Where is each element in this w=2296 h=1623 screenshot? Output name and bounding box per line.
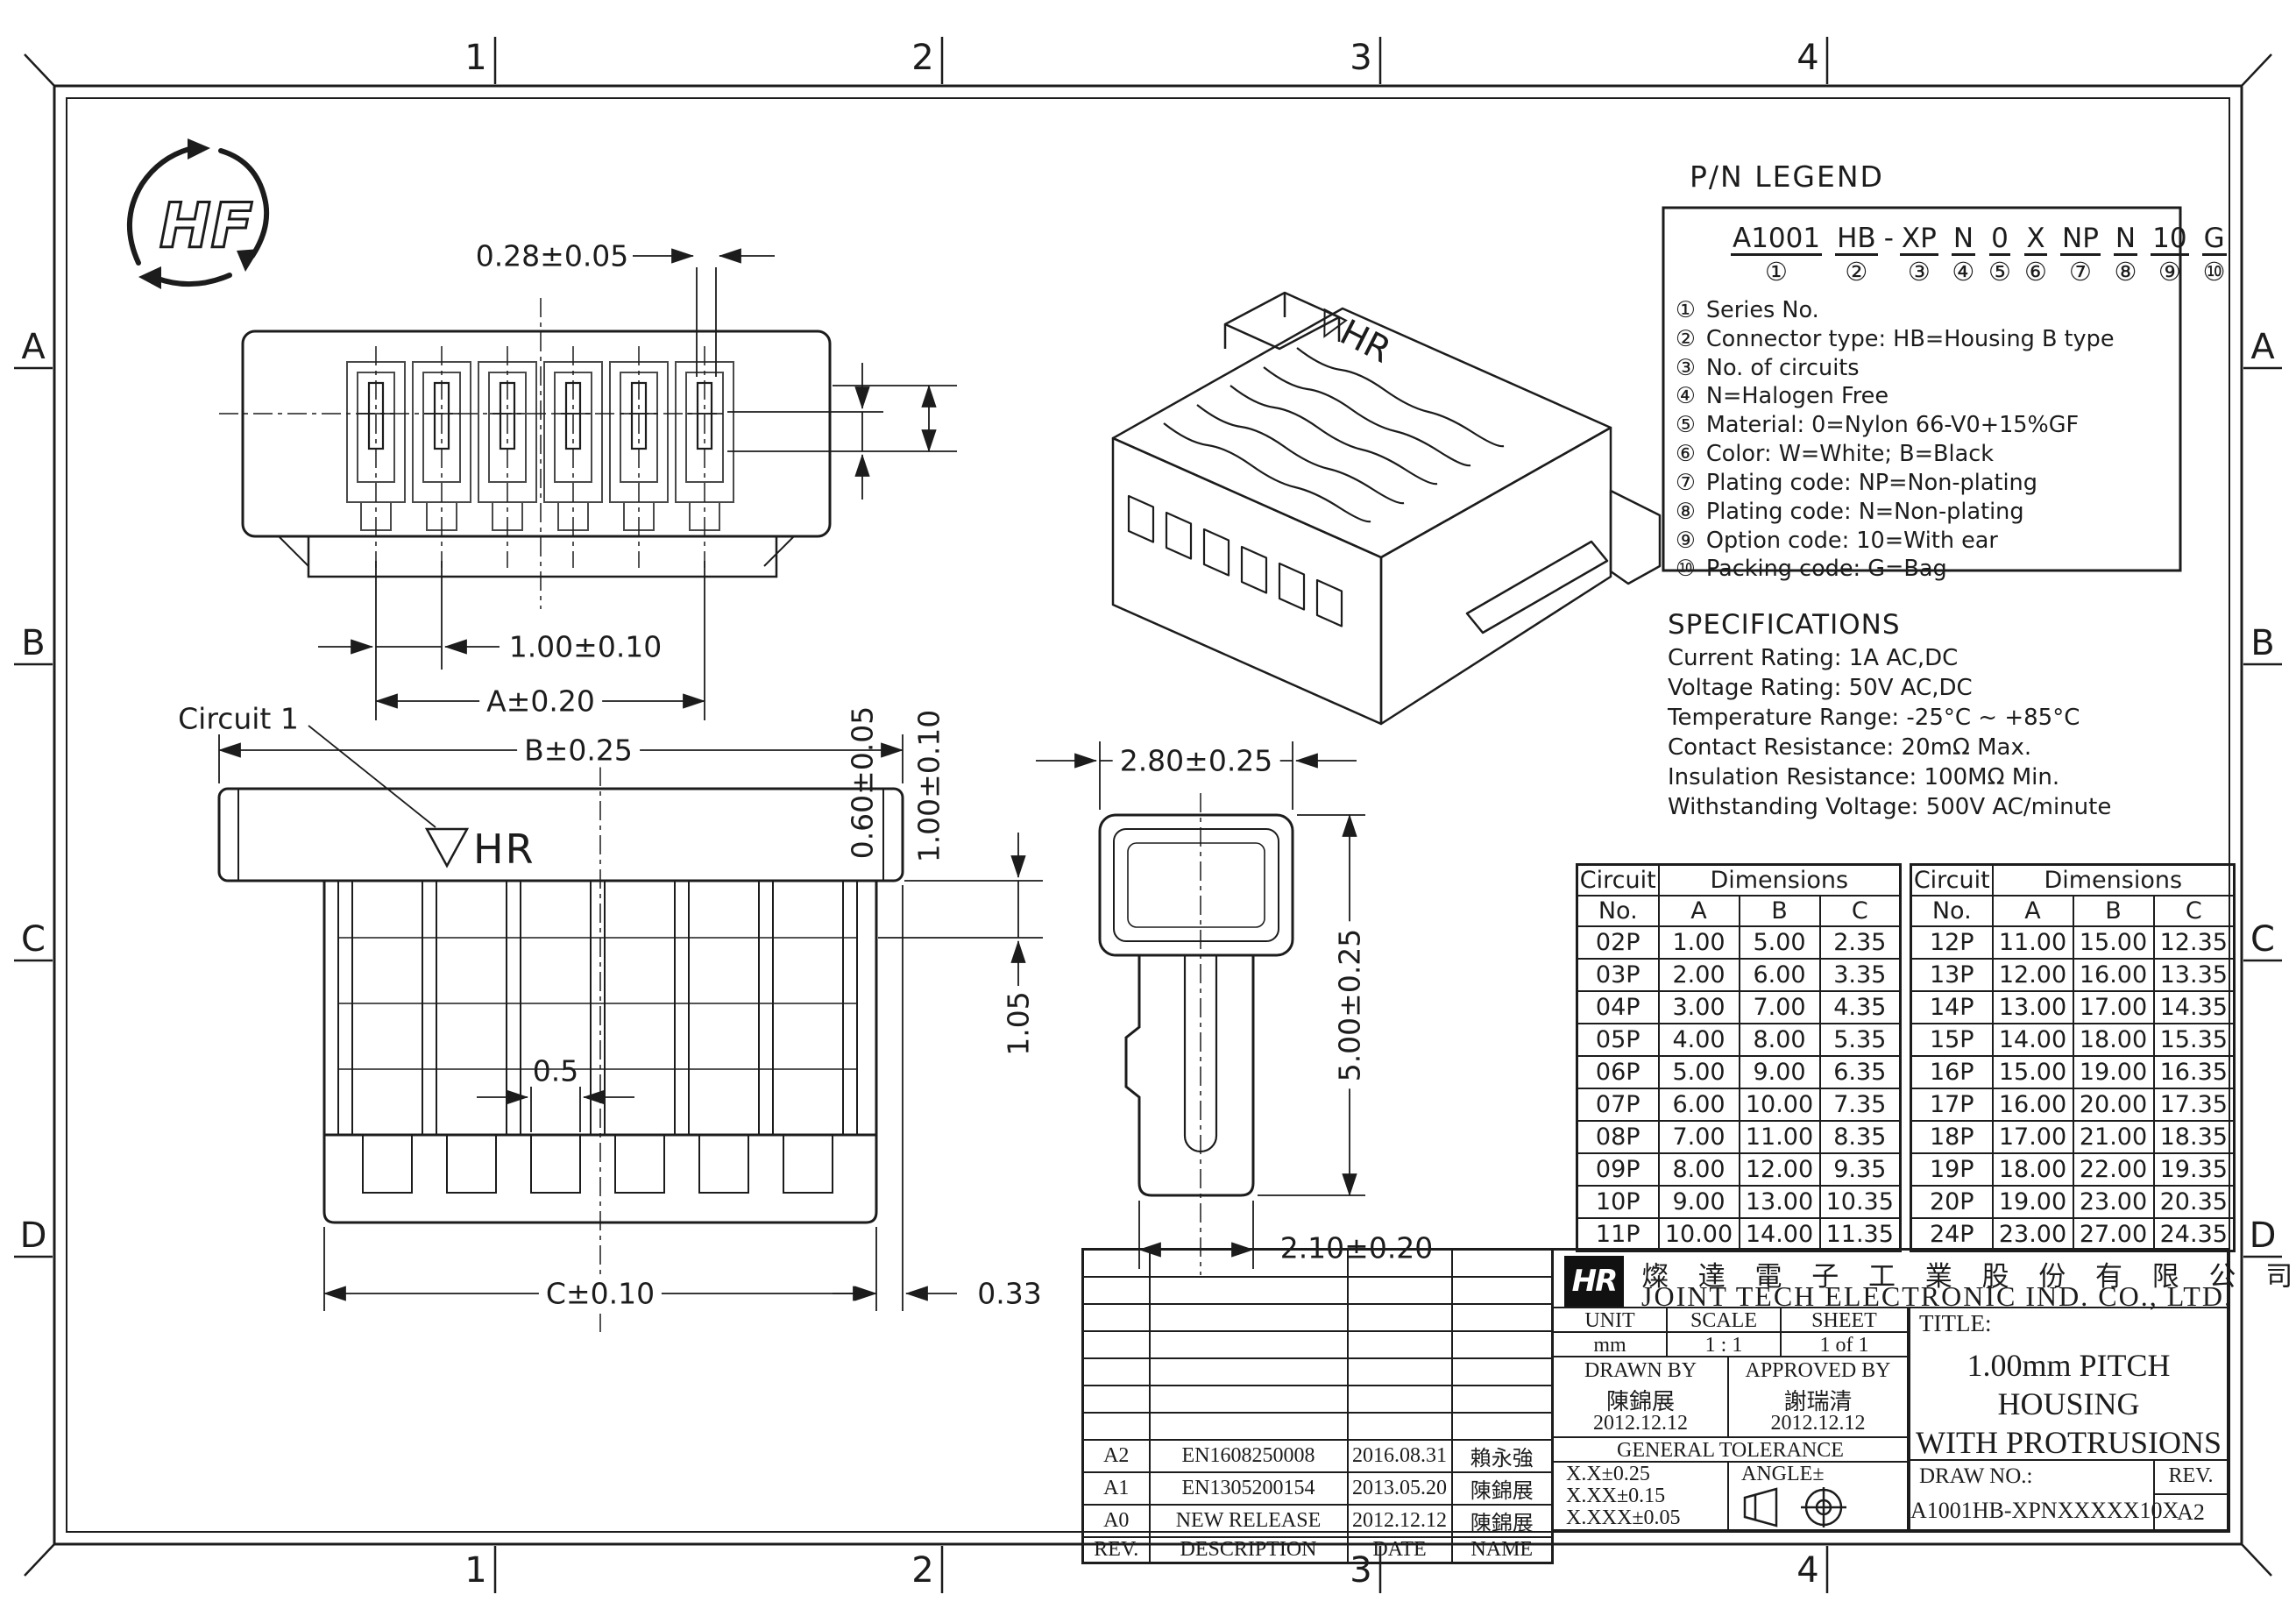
pn-legend-item: ⑧Plating code: N=Non-plating — [1676, 500, 2115, 525]
table-header-row: CircuitDimensions — [1577, 865, 1901, 897]
pn-legend-item: ②Connector type: HB=Housing B type — [1676, 327, 2115, 352]
dim-b-width: B±0.25 — [517, 734, 640, 768]
scale-header-cell: SCALE — [1668, 1308, 1782, 1333]
table-row: 06P5.009.006.35 — [1577, 1056, 1901, 1088]
grid-row-label: D — [2250, 1215, 2277, 1256]
dim-side-height: 5.00±0.25 — [1333, 922, 1367, 1089]
sheet-value-cell: 1 of 1 — [1782, 1333, 1909, 1357]
isometric-view-linework — [1113, 293, 1660, 724]
grid-row-label: A — [21, 327, 45, 367]
side-view-linework — [1036, 741, 1365, 1275]
dim-pitch: 1.00±0.10 — [509, 630, 663, 664]
dim-c-width: C±0.10 — [539, 1277, 662, 1311]
table-row — [1083, 1331, 1553, 1358]
table-row: 10P9.0013.0010.35 — [1577, 1186, 1901, 1218]
table-row: 04P3.007.004.35 — [1577, 991, 1901, 1024]
table-row: 03P2.006.003.35 — [1577, 959, 1901, 991]
circuit1-label: Circuit 1 — [178, 702, 299, 736]
table-row: 02P1.005.002.35 — [1577, 926, 1901, 959]
pn-segment: N⑧ — [2114, 223, 2137, 285]
pn-legend-item: ④N=Halogen Free — [1676, 384, 2115, 409]
table-row: 11P10.0014.0011.35 — [1577, 1218, 1901, 1251]
unit-value-cell: mm — [1554, 1333, 1668, 1357]
dim-overall-width: A±0.20 — [479, 684, 602, 719]
table-row: 12P11.0015.0012.35 — [1911, 926, 2235, 959]
table-header-row: REV.DESCRIPTIONDATENAME — [1083, 1537, 1553, 1563]
projection-symbol-icon — [1738, 1487, 1887, 1527]
table-row: 07P6.0010.007.35 — [1577, 1088, 1901, 1121]
grid-row-label: C — [21, 919, 46, 960]
company-logo: HR — [1564, 1256, 1624, 1307]
pn-legend-item: ⑨Option code: 10=With ear — [1676, 528, 2115, 554]
pn-segment: XP③ — [1900, 223, 1938, 285]
spec-line: Current Rating: 1A AC,DC — [1668, 645, 2111, 671]
dim-offset-033: 0.33 — [977, 1277, 1041, 1311]
pn-legend-item: ①Series No. — [1676, 298, 2115, 323]
hf-recycle-icon: HF — [130, 138, 266, 289]
table-row — [1083, 1413, 1553, 1440]
pn-legend-title: P/N LEGEND — [1690, 159, 1884, 194]
grid-col-label: 4 — [1796, 38, 1818, 78]
table-row: A0NEW RELEASE2012.12.12陳錦展 — [1083, 1505, 1553, 1537]
pn-legend-item: ③No. of circuits — [1676, 356, 2115, 381]
dim-side-width: 2.80±0.25 — [1113, 744, 1280, 778]
table-header-row: CircuitDimensions — [1911, 865, 2235, 897]
table-row: A1EN13052001542013.05.20陳錦展 — [1083, 1472, 1553, 1505]
title-block: HR 燦 達 電 子 工 業 股 份 有 限 公 司 JOINT TECH EL… — [1551, 1248, 2229, 1532]
table-row: 20P19.0023.0020.35 — [1911, 1186, 2235, 1218]
pn-segment: 10⑨ — [2151, 223, 2188, 285]
pn-legend-items: ①Series No. ②Connector type: HB=Housing … — [1676, 298, 2115, 583]
spec-line: Contact Resistance: 20mΩ Max. — [1668, 734, 2111, 761]
approved-by-cell: APPROVED BY 謝瑞清 2012.12.12 — [1729, 1357, 1909, 1438]
spec-line: Withstanding Voltage: 500V AC/minute — [1668, 794, 2111, 820]
draw-no-cell: DRAW NO.: A1001HB-XPNXXXXX10X — [1909, 1461, 2153, 1529]
dim-contact-width: 0.28±0.05 — [476, 239, 629, 273]
rev-value-cell: A2 — [2153, 1495, 2227, 1529]
grid-row-label: B — [2250, 623, 2274, 663]
pn-segment: X⑥ — [2024, 223, 2047, 285]
table-row — [1083, 1358, 1553, 1386]
grid-col-label: 1 — [464, 38, 486, 78]
scale-value-cell: 1 : 1 — [1668, 1333, 1782, 1357]
table-row: 15P14.0018.0015.35 — [1911, 1024, 2235, 1056]
table-row — [1083, 1386, 1553, 1413]
dim-wall-105: 1.05 — [1002, 991, 1036, 1055]
table-row: 13P12.0016.0013.35 — [1911, 959, 2235, 991]
pn-legend-item: ⑦Plating code: NP=Non-plating — [1676, 471, 2115, 496]
spec-line: Temperature Range: -25°C ~ +85°C — [1668, 705, 2111, 731]
specifications-title: SPECIFICATIONS — [1668, 609, 1901, 641]
tolerance-values-cell: X.X±0.25 X.XX±0.15 X.XXX±0.05 — [1554, 1463, 1729, 1529]
pn-segment: 0⑤ — [1988, 223, 2011, 285]
table-row — [1083, 1250, 1553, 1278]
grid-col-label: 4 — [1796, 1550, 1818, 1591]
spec-line: Voltage Rating: 50V AC,DC — [1668, 675, 2111, 701]
table-row: 24P23.0027.0024.35 — [1911, 1218, 2235, 1251]
table-row — [1083, 1304, 1553, 1331]
circuit-dimensions-tables: CircuitDimensions No.ABC 02P1.005.002.35… — [1576, 863, 2236, 1252]
sheet-header-cell: SHEET — [1782, 1308, 1909, 1333]
pn-segment: A1001① — [1731, 223, 1822, 285]
table-row: 18P17.0021.0018.35 — [1911, 1121, 2235, 1153]
title-cell: TITLE: 1.00mm PITCH HOUSING WITH PROTRUS… — [1909, 1308, 2227, 1461]
pn-segment: G⑩ — [2202, 223, 2227, 285]
grid-row-label: C — [2250, 919, 2275, 960]
pn-legend-item: ⑩Packing code: G=Bag — [1676, 556, 2115, 582]
table-row — [1083, 1277, 1553, 1304]
pn-segment: N④ — [1952, 223, 1975, 285]
rev-label-cell: REV. — [2153, 1461, 2227, 1495]
drawing-sheet: HF — [0, 0, 2296, 1623]
pn-legend-item: ⑥Color: W=White; B=Black — [1676, 442, 2115, 467]
grid-col-label: 2 — [911, 38, 933, 78]
angle-cell: ANGLE± — [1729, 1463, 1909, 1529]
housing-marking: HR — [473, 826, 535, 873]
specifications-list: Current Rating: 1A AC,DC Voltage Rating:… — [1668, 645, 2111, 820]
table-row: 08P7.0011.008.35 — [1577, 1121, 1901, 1153]
table-header-row: No.ABC — [1911, 896, 2235, 926]
drawn-by-cell: DRAWN BY 陳錦展 2012.12.12 — [1554, 1357, 1729, 1438]
table-row: 09P8.0012.009.35 — [1577, 1153, 1901, 1186]
dim-tooth-05: 0.5 — [533, 1054, 578, 1088]
pn-segment: HB② — [1835, 223, 1878, 285]
grid-row-label: A — [2250, 327, 2274, 367]
pn-legend-item: ⑤Material: 0=Nylon 66-V0+15%GF — [1676, 413, 2115, 438]
dim-height-060: 0.60±0.05 — [846, 706, 880, 860]
table-row: 05P4.008.005.35 — [1577, 1024, 1901, 1056]
pn-segments: A1001① HB② - XP③ N④ 0⑤ X⑥ NP⑦ N⑧ 10⑨ G⑩ — [1731, 223, 2227, 285]
table-row: A2EN16082500082016.08.31賴永強 — [1083, 1440, 1553, 1472]
table-row: 19P18.0022.0019.35 — [1911, 1153, 2235, 1186]
dim-height-100: 1.00±0.10 — [912, 710, 946, 863]
table-row: 17P16.0020.0017.35 — [1911, 1088, 2235, 1121]
revision-table: A2EN16082500082016.08.31賴永強 A1EN13052001… — [1081, 1248, 1554, 1564]
grid-col-label: 2 — [911, 1550, 933, 1591]
pn-segment: NP⑦ — [2060, 223, 2101, 285]
pn-segment: - — [1882, 223, 1896, 257]
grid-col-label: 3 — [1350, 38, 1371, 78]
table-row: 14P13.0017.0014.35 — [1911, 991, 2235, 1024]
grid-row-label: B — [21, 623, 45, 663]
dimensions-table-right: CircuitDimensions No.ABC 12P11.0015.0012… — [1910, 863, 2236, 1252]
spec-line: Insulation Resistance: 100MΩ Min. — [1668, 764, 2111, 790]
table-row: 16P15.0019.0016.35 — [1911, 1056, 2235, 1088]
hf-mark-text: HF — [159, 190, 252, 262]
unit-header-cell: UNIT — [1554, 1308, 1668, 1333]
dimensions-table-left: CircuitDimensions No.ABC 02P1.005.002.35… — [1576, 863, 1902, 1252]
general-tolerance-cell: GENERAL TOLERANCE — [1554, 1438, 1909, 1463]
table-header-row: No.ABC — [1577, 896, 1901, 926]
grid-col-label: 1 — [464, 1550, 486, 1591]
grid-row-label: D — [20, 1215, 47, 1256]
